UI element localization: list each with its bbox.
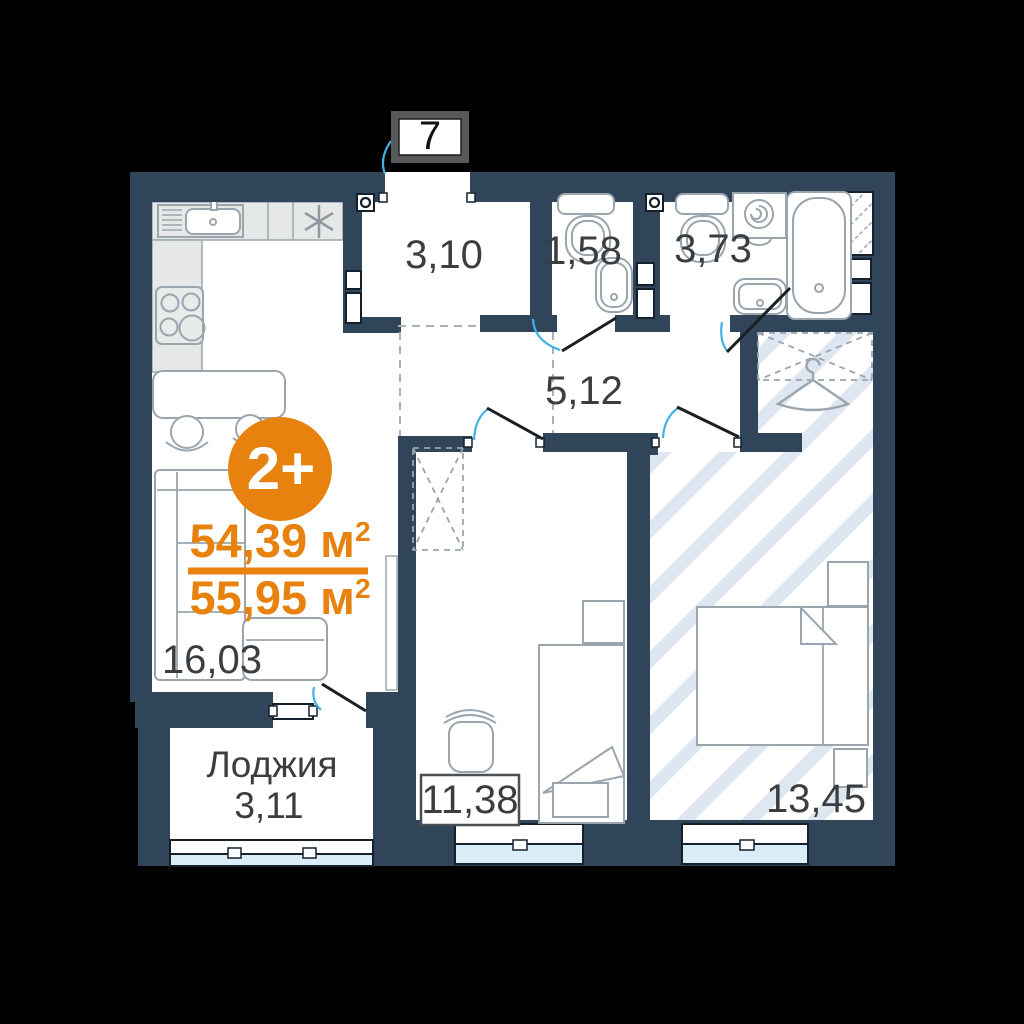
room-label-bedroom: 11,38 bbox=[421, 778, 518, 822]
ventilation-icon bbox=[357, 194, 374, 211]
living-area-label: 54,39 м2 bbox=[189, 514, 370, 567]
unit-number-plate: 7 bbox=[391, 111, 469, 163]
room-label-loggia-area: 3,11 bbox=[234, 785, 303, 826]
floorplan-svg: 3,10 1,58 3,73 5,12 16,03 11,38 13,45 Ло… bbox=[0, 0, 1024, 1024]
room-label-kitchen-living: 16,03 bbox=[162, 638, 262, 682]
dining-table-icon bbox=[153, 371, 285, 418]
stove-icon bbox=[156, 287, 205, 344]
washbasin-icon bbox=[734, 279, 786, 314]
room-label-hallway: 3,10 bbox=[405, 233, 483, 277]
unit-number-label: 7 bbox=[419, 114, 441, 158]
mirror-icon bbox=[386, 556, 397, 690]
room-label-corridor: 5,12 bbox=[545, 369, 623, 413]
window-loggia bbox=[170, 840, 373, 866]
room-label-wc: 1,58 bbox=[544, 229, 622, 273]
floorplan-canvas: 3,10 1,58 3,73 5,12 16,03 11,38 13,45 Ло… bbox=[0, 0, 1024, 1024]
window-kitchen-loggia bbox=[269, 704, 317, 719]
window-master-bedroom bbox=[682, 824, 808, 864]
room-label-bathroom: 3,73 bbox=[674, 227, 752, 271]
room-label-loggia: Лоджия bbox=[206, 744, 337, 785]
window-bedroom bbox=[455, 824, 583, 864]
room-label-master-bedroom: 13,45 bbox=[766, 777, 866, 821]
ventilation-icon bbox=[646, 194, 663, 211]
layout-badge-label: 2+ bbox=[247, 435, 315, 502]
total-area-label: 55,95 м2 bbox=[189, 571, 370, 624]
bathtub-icon bbox=[787, 192, 851, 319]
